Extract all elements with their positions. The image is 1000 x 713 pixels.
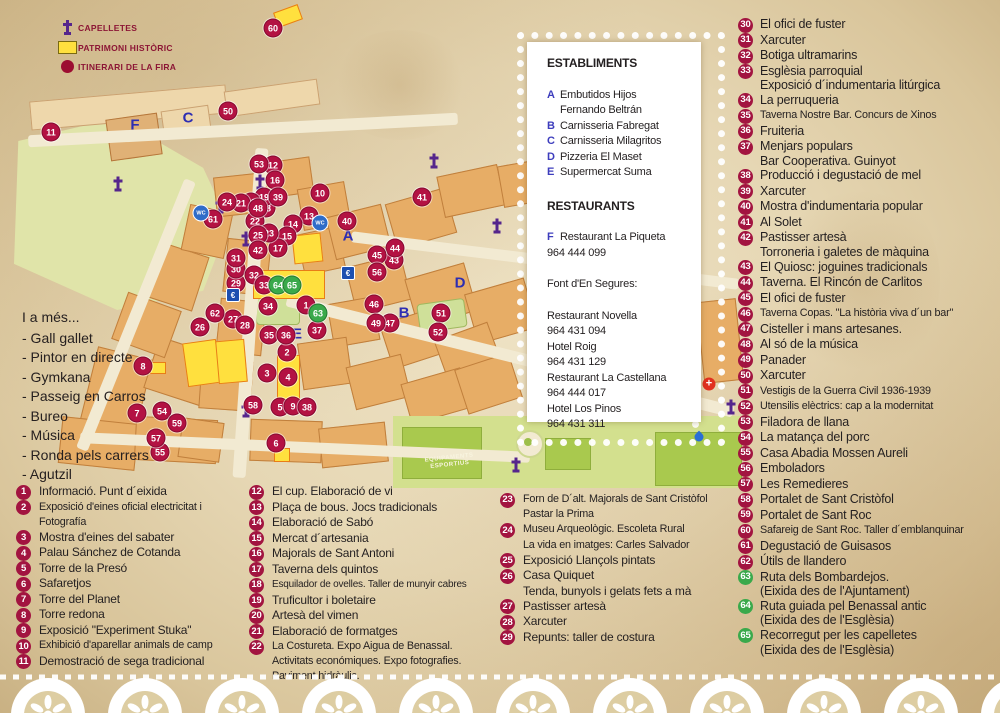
restaurants-title: RESTAURANTS [547, 199, 701, 215]
item-text: Emboladors [760, 461, 825, 476]
item-text: Museu Arqueològic. Escoleta RuralLa vida… [523, 522, 689, 552]
capelleta-cross-icon [511, 458, 522, 473]
map-building [436, 164, 505, 218]
item-number-badge: 56 [738, 462, 753, 477]
map-marker-59: 59 [168, 414, 187, 433]
itinerari-circle-icon [56, 60, 78, 73]
item-text: Mostra d'indumentaria popular [760, 199, 923, 214]
item-text: Exposició Llançols pintats [523, 553, 655, 568]
item-text: Ruta guiada pel Benassal antic(Eixida de… [760, 599, 926, 628]
item-text: Elaboració de formatges [272, 624, 397, 639]
item-number-badge: 44 [738, 276, 753, 291]
item-text: La perruqueria [760, 93, 839, 108]
item-text: La matança del porc [760, 430, 869, 445]
list-item-8: 8Torre redona [16, 607, 213, 623]
item-text: Truficultor i boletaire [272, 593, 376, 608]
item-text: Taverna Nostre Bar. Concurs de Xinos [760, 108, 936, 123]
item-number-badge: 53 [738, 415, 753, 430]
item-number-badge: 1 [16, 485, 31, 500]
item-text: Pastisser artesàTorroneria i galetes de … [760, 230, 929, 259]
euro-icon: € [226, 288, 240, 302]
item-text: Taverna dels quintos [272, 562, 378, 577]
list-item-38: 38Producció i degustació de mel [738, 168, 964, 184]
establiment-key: C [547, 134, 560, 150]
item-text: Torre de la Presó [39, 561, 127, 576]
item-number-badge: 61 [738, 539, 753, 554]
item-number-badge: 37 [738, 140, 753, 155]
establiment-key: A [547, 88, 560, 119]
item-number-badge: 30 [738, 18, 753, 33]
item-text: Fruiteria [760, 124, 804, 139]
item-number-badge: 64 [738, 599, 753, 614]
list-item-29: 29Repunts: taller de costura [500, 630, 707, 646]
map-marker-41: 41 [413, 188, 432, 207]
map-marker-34: 34 [259, 297, 278, 316]
map-marker-26: 26 [191, 318, 210, 337]
list-item-58: 58Portalet de Sant Cristòfol [738, 492, 964, 508]
euro-icon: € [341, 266, 355, 280]
item-number-badge: 9 [16, 623, 31, 638]
restaurant-item: F Restaurant La Piqueta [547, 230, 701, 246]
item-text: Informació. Punt d´eixida [39, 484, 167, 499]
font-segures-name: Hotel Roig [547, 340, 701, 356]
item-number-badge: 45 [738, 291, 753, 306]
map-marker-36: 36 [277, 326, 296, 345]
establiment-item: AEmbutidos HijosFernando Beltrán [547, 88, 701, 119]
list-item-16: 16Majorals de Sant Antoni [249, 546, 467, 562]
establiment-key: B [547, 119, 560, 135]
list-item-20: 20Artesà del vimen [249, 608, 467, 624]
list-item-41: 41Al Solet [738, 215, 964, 231]
list-item-13: 13Plaça de bous. Jocs tradicionals [249, 500, 467, 516]
legend-label: CAPELLETES [78, 23, 137, 33]
item-number-badge: 10 [16, 639, 31, 654]
list-item-37: 37Menjars popularsBar Cooperativa. Guiny… [738, 139, 964, 168]
also-item: - Gall gallet [22, 329, 149, 349]
item-text: Plaça de bous. Jocs tradicionals [272, 500, 437, 515]
list-item-47: 47Cisteller i mans artesanes. [738, 322, 964, 338]
item-number-badge: 25 [500, 553, 515, 568]
item-number-badge: 50 [738, 369, 753, 384]
item-number-badge: 5 [16, 561, 31, 576]
item-text: Elaboració de Sabó [272, 515, 373, 530]
capelleta-cross-icon [56, 20, 78, 35]
map-marker-60: 60 [264, 19, 283, 38]
item-text: Torre del Planet [39, 592, 120, 607]
establiment-item: BCarnisseria Fabregat [547, 119, 701, 135]
list-items-1-11: 1Informació. Punt d´eixida2Exposició d'e… [16, 484, 213, 669]
item-number-badge: 19 [249, 593, 264, 608]
list-item-34: 34La perruqueria [738, 93, 964, 109]
list-item-40: 40Mostra d'indumentaria popular [738, 199, 964, 215]
item-text: Botiga ultramarins [760, 48, 857, 63]
establiment-key: E [547, 165, 560, 181]
item-text: Xarcuter [523, 614, 567, 629]
list-item-64: 64Ruta guiada pel Benassal antic(Eixida … [738, 599, 964, 628]
item-text: Panader [760, 353, 806, 368]
map-letter-B: B [399, 305, 410, 322]
list-item-43: 43El Quiosc: joguines tradicionals [738, 260, 964, 276]
list-item-7: 7Torre del Planet [16, 592, 213, 608]
item-text: Xarcuter [760, 33, 806, 48]
legend-row: PATRIMONI HISTÒRIC [56, 41, 176, 54]
patrimoni-square-icon [56, 41, 78, 54]
also-title: I a més... [22, 308, 149, 328]
item-text: Palau Sánchez de Cotanda [39, 545, 180, 560]
item-number-badge: 52 [738, 400, 753, 415]
item-number-badge: 2 [16, 500, 31, 515]
item-text: Esglèsia parroquialExposició d´indumenta… [760, 64, 940, 93]
also-item: - Ronda pels carrers [22, 446, 149, 466]
establiment-key: D [547, 150, 560, 166]
item-text: Ruta dels Bombardejos.(Eixida des de l'A… [760, 570, 910, 599]
map-marker-42: 42 [249, 241, 268, 260]
list-item-50: 50Xarcuter [738, 368, 964, 384]
lace-border-bottom [0, 669, 1000, 713]
list-item-21: 21Elaboració de formatges [249, 624, 467, 640]
item-text: Repunts: taller de costura [523, 630, 655, 645]
map-marker-52: 52 [429, 323, 448, 342]
item-text: El ofici de fuster [760, 291, 845, 306]
item-text: Al Solet [760, 215, 801, 230]
item-text: El cup. Elaboració de vi [272, 484, 393, 499]
map-building [346, 354, 412, 410]
capelleta-cross-icon [113, 177, 124, 192]
map-building [297, 337, 353, 391]
item-text: Pastisser artesà [523, 599, 606, 614]
capelleta-cross-icon [726, 400, 737, 415]
map-building [224, 79, 321, 118]
item-text: Artesà del vimen [272, 608, 358, 623]
list-item-28: 28Xarcuter [500, 614, 707, 630]
item-number-badge: 17 [249, 562, 264, 577]
font-segures-phone: 964 431 129 [547, 355, 701, 371]
map-marker-40: 40 [338, 212, 357, 231]
list-item-33: 33Esglèsia parroquialExposició d´indumen… [738, 64, 964, 93]
map-marker-28: 28 [236, 316, 255, 335]
item-number-badge: 54 [738, 431, 753, 446]
list-item-60: 60Safareig de Sant Roc. Taller d´emblanq… [738, 523, 964, 539]
item-number-badge: 31 [738, 33, 753, 48]
list-item-35: 35Taverna Nostre Bar. Concurs de Xinos [738, 108, 964, 124]
map-marker-2: 2 [278, 343, 297, 362]
list-item-25: 25Exposició Llançols pintats [500, 553, 707, 569]
map-marker-56: 56 [368, 263, 387, 282]
map-marker-16: 16 [266, 171, 285, 190]
item-number-badge: 24 [500, 523, 515, 538]
list-item-26: 26Casa QuiquetTenda, bunyols i gelats fe… [500, 568, 707, 598]
list-item-1: 1Informació. Punt d´eixida [16, 484, 213, 500]
item-number-badge: 27 [500, 599, 515, 614]
map-marker-65: 65 [283, 276, 302, 295]
list-item-17: 17Taverna dels quintos [249, 562, 467, 578]
map-marker-38: 38 [298, 398, 317, 417]
map-marker-51: 51 [432, 304, 451, 323]
item-number-badge: 12 [249, 485, 264, 500]
item-text: Casa Abadia Mossen Aureli [760, 446, 908, 461]
map-marker-62: 62 [206, 304, 225, 323]
list-item-2: 2Exposició d'eines oficial electricitat … [16, 500, 213, 530]
list-item-62: 62Útils de llandero [738, 554, 964, 570]
map-letter-C: C [183, 110, 194, 127]
list-item-9: 9Exposició "Experiment Stuka" [16, 623, 213, 639]
map-marker-50: 50 [219, 102, 238, 121]
also-item: - Pintor en directe [22, 348, 149, 368]
list-item-32: 32Botiga ultramarins [738, 48, 964, 64]
item-number-badge: 49 [738, 353, 753, 368]
map-letter-F: F [130, 117, 139, 134]
list-item-54: 54La matança del porc [738, 430, 964, 446]
list-item-55: 55Casa Abadia Mossen Aureli [738, 446, 964, 462]
list-item-59: 59Portalet de Sant Roc [738, 508, 964, 524]
item-number-badge: 57 [738, 477, 753, 492]
list-item-23: 23Forn de D´alt. Majorals de Sant Cristò… [500, 492, 707, 522]
list-item-4: 4Palau Sánchez de Cotanda [16, 545, 213, 561]
item-number-badge: 15 [249, 531, 264, 546]
map-marker-24: 24 [218, 193, 237, 212]
list-item-30: 30El ofici de fuster [738, 17, 964, 33]
item-number-badge: 43 [738, 260, 753, 275]
item-text: Casa QuiquetTenda, bunyols i gelats fets… [523, 568, 691, 598]
item-text: Recorregut per les capelletes(Eixida des… [760, 628, 917, 657]
item-text: Xarcuter [760, 368, 806, 383]
legend-row: ITINERARI DE LA FIRA [56, 60, 176, 73]
item-text: Torre redona [39, 607, 105, 622]
map-marker-39: 39 [269, 188, 288, 207]
item-number-badge: 8 [16, 608, 31, 623]
item-text: Safaretjos [39, 576, 91, 591]
list-item-27: 27Pastisser artesà [500, 599, 707, 615]
item-text: Portalet de Sant Cristòfol [760, 492, 894, 507]
map-letter-D: D [455, 275, 466, 292]
list-item-19: 19Truficultor i boletaire [249, 593, 467, 609]
capelleta-cross-icon [429, 154, 440, 169]
establiment-name: Embutidos HijosFernando Beltrán [560, 88, 701, 119]
item-number-badge: 51 [738, 384, 753, 399]
list-item-10: 10Exhibició d'aparellar animals de camp [16, 638, 213, 654]
map-marker-46: 46 [365, 295, 384, 314]
item-number-badge: 29 [500, 630, 515, 645]
map-marker-49: 49 [367, 314, 386, 333]
map-marker-48: 48 [249, 199, 268, 218]
list-item-48: 48Al só de la música [738, 337, 964, 353]
also-item: - Bureo [22, 407, 149, 427]
restaurant-name: Restaurant La Piqueta [560, 230, 701, 246]
item-text: Degustació de Guisasos [760, 539, 891, 554]
establiment-name: Carnisseria Milagritos [560, 134, 701, 150]
list-item-39: 39Xarcuter [738, 184, 964, 200]
list-item-11: 11Demostració de sega tradicional [16, 654, 213, 670]
item-number-badge: 18 [249, 578, 264, 593]
font-segures-phone: 964 431 311 [547, 417, 701, 433]
item-text: Exposició d'eines oficial electricitat i… [39, 500, 202, 530]
item-number-badge: 42 [738, 231, 753, 246]
item-number-badge: 14 [249, 516, 264, 531]
item-number-badge: 59 [738, 508, 753, 523]
font-segures-title: Font d'En Segures: [547, 277, 701, 293]
establiments-list: AEmbutidos HijosFernando BeltránBCarniss… [547, 88, 701, 181]
benassal-fair-map-page: 1234567891011121314151617181920212223242… [0, 0, 1000, 713]
item-number-badge: 4 [16, 546, 31, 561]
wc-icon: WC [193, 205, 210, 222]
list-item-45: 45El ofici de fuster [738, 291, 964, 307]
item-text: Xarcuter [760, 184, 806, 199]
item-text: Majorals de Sant Antoni [272, 546, 394, 561]
item-number-badge: 21 [249, 624, 264, 639]
map-marker-44: 44 [386, 239, 405, 258]
item-number-badge: 13 [249, 500, 264, 515]
font-segures-name: Restaurant La Castellana [547, 371, 701, 387]
list-item-52: 52Utensilis elèctrics: cap a la modernit… [738, 399, 964, 415]
establiment-item: DPizzeria El Maset [547, 150, 701, 166]
font-segures-name: Hotel Los Pinos [547, 402, 701, 418]
item-text: El ofici de fuster [760, 17, 845, 32]
item-text: Producció i degustació de mel [760, 168, 921, 183]
restaurant-key: F [547, 230, 560, 246]
map-marker-11: 11 [42, 123, 61, 142]
list-item-6: 6Safaretjos [16, 576, 213, 592]
item-number-badge: 58 [738, 493, 753, 508]
establiment-name: Carnisseria Fabregat [560, 119, 701, 135]
wc-icon: WC [312, 215, 329, 232]
list-item-24: 24Museu Arqueològic. Escoleta RuralLa vi… [500, 522, 707, 552]
establiment-name: Supermercat Suma [560, 165, 701, 181]
item-number-badge: 48 [738, 338, 753, 353]
map-marker-63: 63 [309, 304, 328, 323]
list-item-49: 49Panader [738, 353, 964, 369]
legend-label: PATRIMONI HISTÒRIC [78, 43, 173, 53]
item-number-badge: 20 [249, 609, 264, 624]
map-marker-58: 58 [244, 396, 263, 415]
item-text: Al só de la música [760, 337, 858, 352]
item-number-badge: 41 [738, 215, 753, 230]
list-item-57: 57Les Remedieres [738, 477, 964, 493]
item-text: Demostració de sega tradicional [39, 654, 204, 669]
item-text: Mostra d'eines del sabater [39, 530, 174, 545]
establiments-title: ESTABLIMENTS [547, 56, 701, 72]
item-number-badge: 38 [738, 169, 753, 184]
map-marker-4: 4 [279, 368, 298, 387]
font-segures-phone: 964 444 017 [547, 386, 701, 402]
item-number-badge: 3 [16, 530, 31, 545]
list-item-65: 65Recorregut per les capelletes(Eixida d… [738, 628, 964, 657]
list-item-12: 12El cup. Elaboració de vi [249, 484, 467, 500]
item-number-badge: 16 [249, 547, 264, 562]
also-list: I a més... - Gall gallet- Pintor en dire… [22, 308, 149, 485]
item-text: Taverna Copas. "La història viva d´un ba… [760, 306, 953, 321]
item-number-badge: 6 [16, 577, 31, 592]
item-number-badge: 46 [738, 307, 753, 322]
item-text: Taverna. El Rincón de Carlitos [760, 275, 922, 290]
item-text: Vestigis de la Guerra Civil 1936-1939 [760, 384, 931, 399]
item-number-badge: 23 [500, 493, 515, 508]
list-items-12-22: 12El cup. Elaboració de vi13Plaça de bou… [249, 484, 467, 685]
item-number-badge: 65 [738, 628, 753, 643]
item-text: Portalet de Sant Roc [760, 508, 871, 523]
item-number-badge: 40 [738, 200, 753, 215]
item-text: El Quiosc: joguines tradicionals [760, 260, 927, 275]
item-number-badge: 34 [738, 93, 753, 108]
item-number-badge: 47 [738, 322, 753, 337]
item-number-badge: 7 [16, 592, 31, 607]
item-text: Menjars popularsBar Cooperativa. Guinyot [760, 139, 896, 168]
list-item-42: 42Pastisser artesàTorroneria i galetes d… [738, 230, 964, 259]
also-item: - Gymkana [22, 368, 149, 388]
legend-row: CAPELLETES [56, 20, 176, 35]
also-item: - Passeig en Carros [22, 387, 149, 407]
item-text: Les Remedieres [760, 477, 848, 492]
item-number-badge: 11 [16, 654, 31, 669]
font-segures-phone: 964 431 094 [547, 324, 701, 340]
list-item-61: 61Degustació de Guisasos [738, 539, 964, 555]
item-text: Safareig de Sant Roc. Taller d´emblanqui… [760, 523, 964, 538]
item-number-badge: 55 [738, 446, 753, 461]
map-marker-10: 10 [311, 184, 330, 203]
item-number-badge: 63 [738, 570, 753, 585]
list-item-14: 14Elaboració de Sabó [249, 515, 467, 531]
establiment-name: Pizzeria El Maset [560, 150, 701, 166]
item-number-badge: 33 [738, 64, 753, 79]
font-segures-name: Restaurant Novella [547, 309, 701, 325]
item-text: Exposició "Experiment Stuka" [39, 623, 191, 638]
list-items-23-29: 23Forn de D´alt. Majorals de Sant Cristò… [500, 492, 707, 645]
map-marker-53: 53 [250, 155, 269, 174]
map-legend: CAPELLETES PATRIMONI HISTÒRIC ITINERARI … [56, 20, 176, 79]
heritage-building [215, 339, 248, 384]
item-text: Mercat d´artesania [272, 531, 368, 546]
item-text: Útils de llandero [760, 554, 846, 569]
map-marker-57: 57 [147, 429, 166, 448]
item-text: Forn de D´alt. Majorals de Sant Cristòfo… [523, 492, 707, 522]
item-text: Cisteller i mans artesanes. [760, 322, 902, 337]
map-marker-31: 31 [227, 249, 246, 268]
list-item-63: 63Ruta dels Bombardejos.(Eixida des de l… [738, 570, 964, 599]
font-segures-list: Restaurant Novella964 431 094Hotel Roig9… [547, 309, 701, 433]
item-text: Utensilis elèctrics: cap a la modernitat [760, 399, 933, 414]
list-item-56: 56Emboladors [738, 461, 964, 477]
item-number-badge: 28 [500, 615, 515, 630]
restaurant-phone: 964 444 099 [547, 246, 701, 262]
list-item-46: 46Taverna Copas. "La història viva d´un … [738, 306, 964, 322]
list-item-5: 5Torre de la Presó [16, 561, 213, 577]
item-number-badge: 26 [500, 569, 515, 584]
item-number-badge: 62 [738, 555, 753, 570]
list-item-31: 31Xarcuter [738, 33, 964, 49]
map-marker-6: 6 [267, 434, 286, 453]
item-number-badge: 22 [249, 640, 264, 655]
legend-label: ITINERARI DE LA FIRA [78, 62, 176, 72]
map-marker-3: 3 [258, 364, 277, 383]
item-text: Esquilador de ovelles. Taller de munyir … [272, 577, 467, 592]
list-item-53: 53Filadora de llana [738, 415, 964, 431]
list-item-44: 44Taverna. El Rincón de Carlitos [738, 275, 964, 291]
establiment-item: CCarnisseria Milagritos [547, 134, 701, 150]
list-item-18: 18Esquilador de ovelles. Taller de munyi… [249, 577, 467, 593]
info-panel: ESTABLIMENTS AEmbutidos HijosFernando Be… [527, 42, 701, 422]
item-number-badge: 35 [738, 109, 753, 124]
item-text: Filadora de llana [760, 415, 849, 430]
also-item: - Agutzil [22, 465, 149, 485]
item-number-badge: 60 [738, 524, 753, 539]
also-item: - Música [22, 426, 149, 446]
item-number-badge: 32 [738, 49, 753, 64]
item-text: Exhibició d'aparellar animals de camp [39, 638, 213, 653]
item-number-badge: 39 [738, 184, 753, 199]
capelleta-cross-icon [492, 219, 503, 234]
list-item-3: 3Mostra d'eines del sabater [16, 530, 213, 546]
establiment-item: ESupermercat Suma [547, 165, 701, 181]
map-marker-37: 37 [308, 321, 327, 340]
